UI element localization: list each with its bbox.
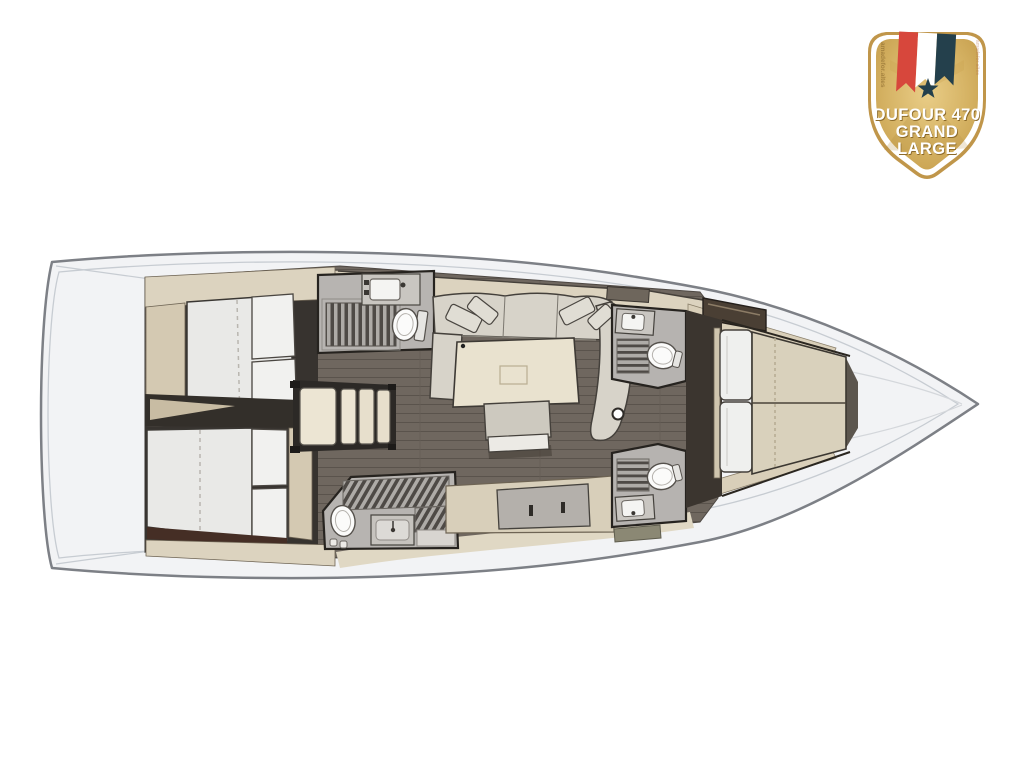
saloon-table — [453, 338, 579, 407]
drawer-handle — [561, 502, 565, 513]
stair-step — [341, 389, 356, 444]
stairs-corner-tab — [388, 444, 396, 450]
counter-fitting — [364, 290, 369, 295]
sink-unit — [615, 309, 655, 336]
shower-grate — [617, 459, 649, 491]
head-starboard-aft — [323, 472, 458, 549]
berth-cushion — [252, 294, 295, 359]
badge-title-line1: DUFOUR 470 — [874, 106, 981, 124]
head-port — [318, 271, 434, 353]
toilet-fitting — [330, 539, 337, 546]
toilet-fitting — [340, 541, 347, 548]
stair-step — [377, 390, 390, 443]
yacht-floorplan-page: DUFOUR 470 DUFOUR 470 GRAND GRAND LARGE … — [0, 0, 1024, 768]
bench-front-panel — [488, 434, 549, 452]
head-forward-port — [612, 305, 686, 388]
galley — [446, 476, 614, 533]
deck-hatch — [607, 287, 650, 303]
stair-step — [300, 388, 336, 445]
pillow — [720, 402, 752, 472]
shower-grate — [326, 303, 396, 346]
berth-cushion — [252, 488, 287, 541]
stairs-corner-tab — [290, 381, 300, 388]
berth-mattress — [147, 428, 252, 540]
companionway-stairs — [290, 380, 396, 453]
badge-title-line3: LARGE — [897, 140, 957, 158]
shower-grate — [415, 506, 449, 532]
table-top — [453, 338, 579, 407]
pillow — [720, 330, 752, 400]
stairs-corner-tab — [290, 446, 300, 453]
sink-basin — [370, 279, 400, 300]
galley-counter — [497, 484, 590, 529]
saloon-bench — [484, 401, 552, 459]
badge: DUFOUR 470 DUFOUR 470 GRAND GRAND LARGE … — [868, 32, 986, 179]
badge-watermark-right: amadefor.altes — [974, 40, 980, 75]
shower-grate — [617, 339, 649, 373]
drawer-handle — [529, 505, 533, 516]
shower-grate — [343, 476, 449, 510]
counter-fitting — [364, 280, 369, 285]
stair-step — [359, 389, 374, 444]
table-fitting — [461, 344, 465, 348]
badge-title-line2: GRAND — [896, 123, 959, 141]
sink-unit — [615, 495, 655, 522]
faucet-icon — [401, 283, 406, 288]
mast-post — [613, 409, 624, 420]
ribbon-stripe-red — [896, 32, 918, 93]
stairs-corner-tab — [388, 384, 396, 390]
headboard — [714, 328, 720, 478]
berth-cushion — [252, 429, 287, 486]
floorplan-svg: DUFOUR 470 DUFOUR 470 GRAND GRAND LARGE … — [0, 0, 1024, 768]
badge-watermark-left: amadefor.altes — [879, 42, 886, 88]
